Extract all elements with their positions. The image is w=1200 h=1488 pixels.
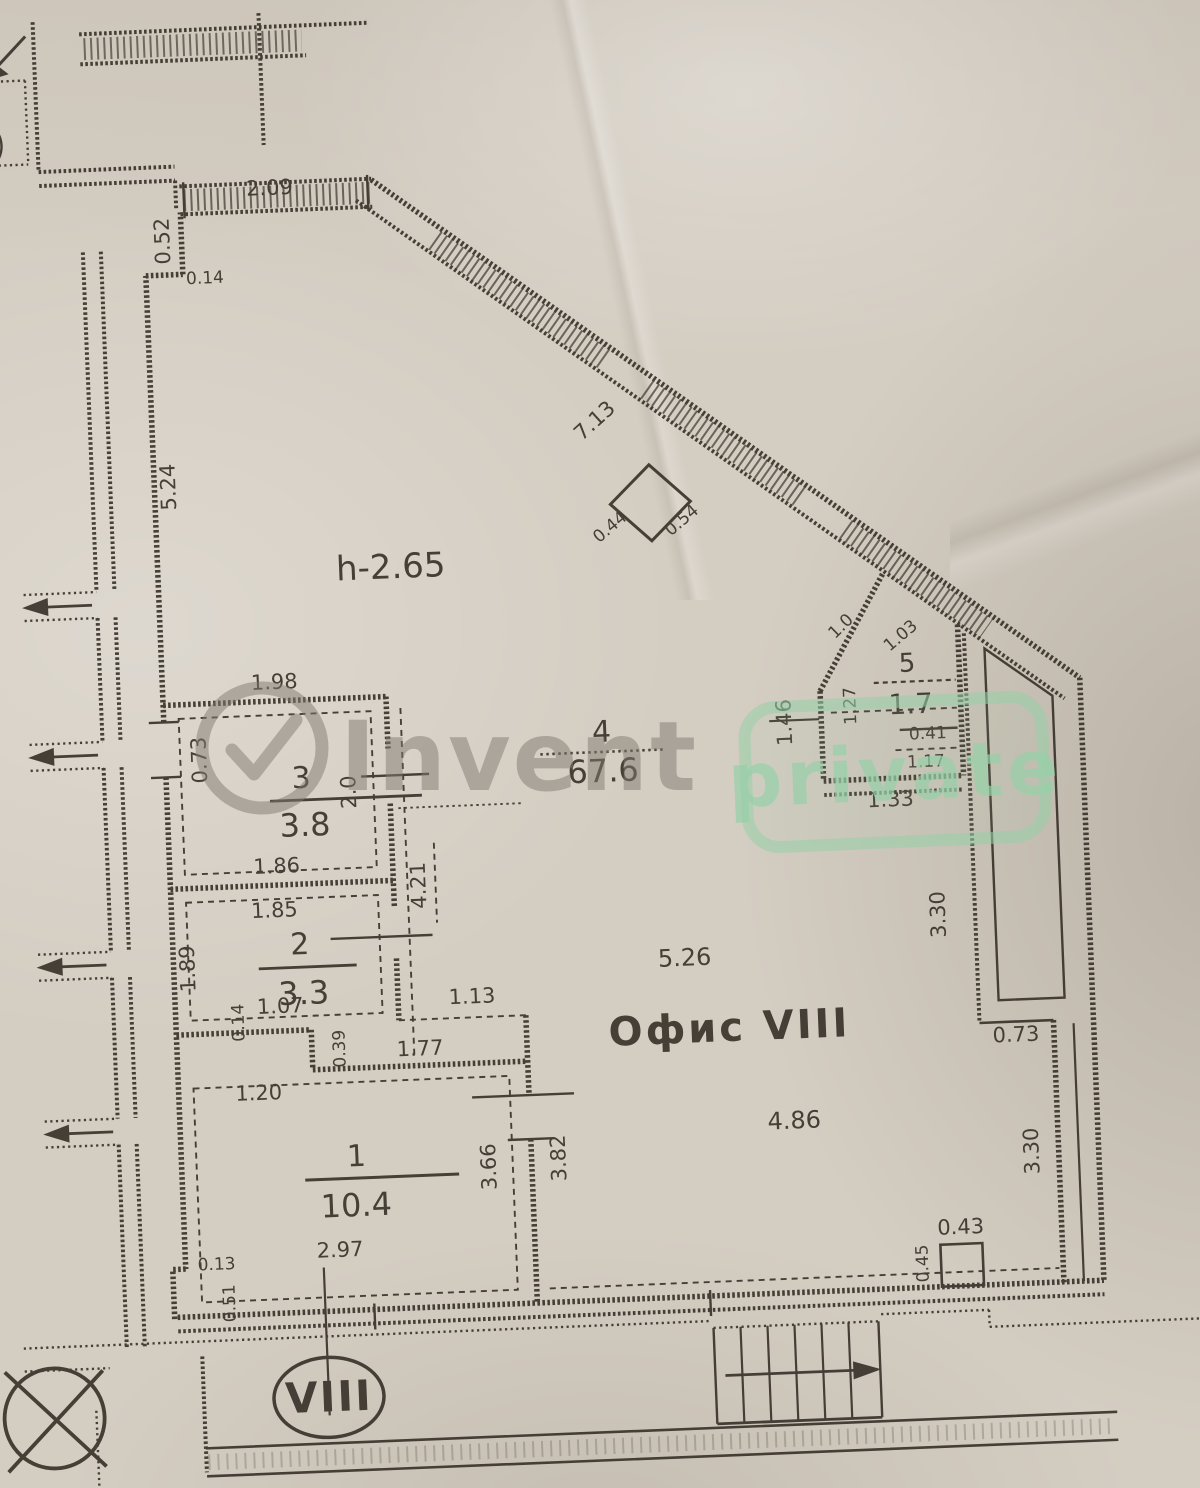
dim-043: 0.43 [937, 1214, 985, 1240]
room3-area: 3.8 [279, 805, 331, 845]
dim-330b: 3.30 [1019, 1127, 1045, 1175]
watermark-logo-icon [202, 688, 322, 808]
dim-189: 1.89 [175, 945, 201, 993]
dim-421: 4.21 [406, 862, 432, 910]
corridor [24, 1300, 1200, 1483]
circle-x-symbol [3, 1366, 116, 1488]
watermark-brand: Invent [340, 701, 698, 813]
duct-box [940, 1243, 984, 1287]
dim-039: 0.39 [329, 1029, 351, 1068]
left-corridor [8, 252, 145, 1353]
exit-arrow-icon [22, 598, 49, 617]
neighbor-top [0, 9, 374, 218]
window-hatch [846, 523, 987, 633]
office-title: Офис VIII [608, 1000, 852, 1056]
dim-113: 1.13 [448, 983, 496, 1009]
exit-arrow-icon [28, 748, 55, 767]
unit-number: VIII [284, 1371, 373, 1423]
dim-186: 1.86 [253, 853, 301, 879]
watermark-badge: private [725, 695, 1065, 849]
stair-arrow-icon [853, 1360, 882, 1379]
dim-297: 2.97 [316, 1237, 364, 1263]
room2-number: 2 [290, 927, 310, 963]
dim-013: 0.13 [197, 1254, 236, 1276]
dim-177: 1.77 [396, 1036, 444, 1062]
dim-382: 3.82 [546, 1134, 572, 1182]
dim-209: 2.09 [246, 175, 294, 201]
dim-054: 0.54 [661, 501, 703, 541]
dim-10: 1.0 [824, 610, 857, 643]
dim-014: 0.14 [186, 268, 225, 290]
dim-526: 5.26 [657, 943, 712, 973]
floor-plan: 2.09 0.52 0.14 5.24 7.13 0.44 0.54 h-2.6… [0, 0, 1200, 1488]
staircase [714, 1321, 884, 1424]
window-hatch [435, 234, 605, 367]
ceiling-height-label: h-2.65 [335, 545, 446, 589]
dim-107: 1.07 [256, 993, 304, 1019]
photographed-floor-plan: 2.09 0.52 0.14 5.24 7.13 0.44 0.54 h-2.6… [0, 0, 1200, 1488]
exit-arrow-icon [36, 958, 63, 977]
window-bands [179, 151, 987, 660]
dim-052: 0.52 [150, 217, 176, 265]
dim-366: 3.66 [476, 1143, 502, 1191]
watermark-badge-label: private [726, 722, 1064, 826]
window-hatch [647, 383, 804, 505]
dim-120: 1.20 [235, 1080, 283, 1106]
room5-number: 5 [898, 648, 916, 679]
dim-044: 0.44 [589, 508, 631, 548]
dim-524: 5.24 [155, 463, 181, 511]
watermark: Invent private [202, 688, 1065, 849]
window-hatch [84, 40, 302, 49]
dim-330a: 3.30 [925, 891, 951, 939]
room1-number: 1 [346, 1139, 366, 1175]
exit-arrow-icon [43, 1125, 70, 1144]
dim-014b: 0.14 [228, 1003, 250, 1042]
room1-area: 10.4 [320, 1185, 393, 1226]
dim-486: 4.86 [767, 1105, 822, 1135]
dim-073b: 0.73 [992, 1022, 1040, 1048]
dim-185: 1.85 [251, 897, 299, 923]
dim-045: 0.45 [912, 1244, 934, 1283]
dim-051: 0.51 [219, 1284, 241, 1323]
dim-713: 7.13 [569, 396, 620, 445]
